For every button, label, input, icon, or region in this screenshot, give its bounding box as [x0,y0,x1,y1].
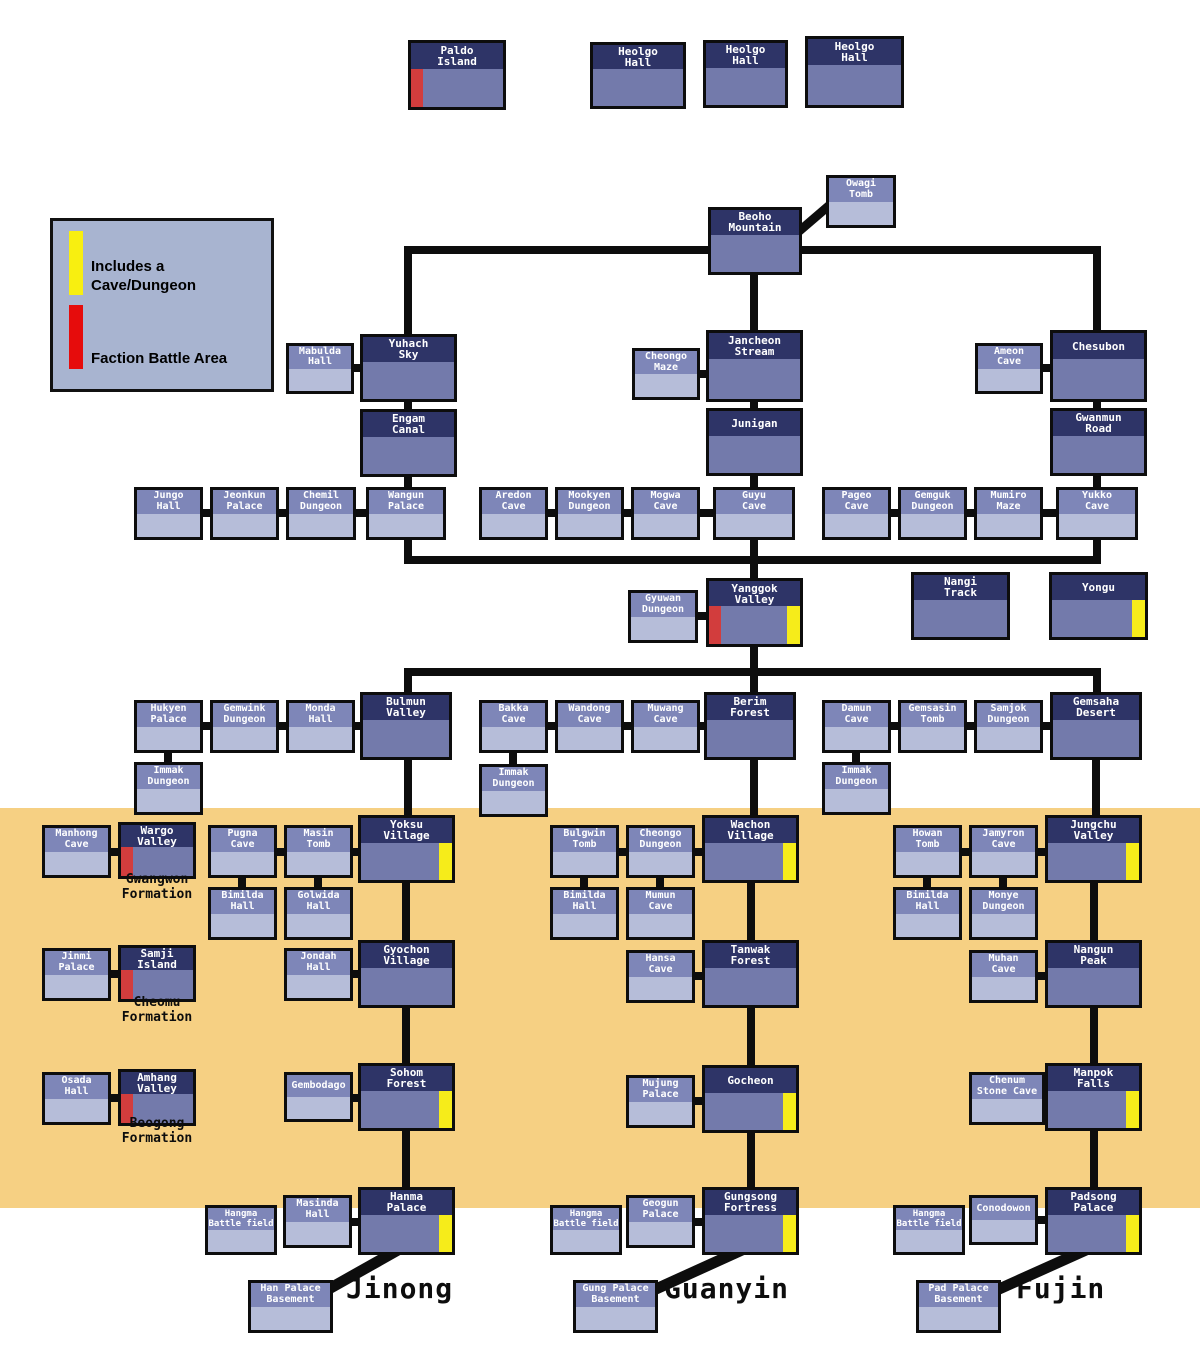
node-label: TanwakForest [705,943,796,968]
node-body [825,789,888,812]
cave-dungeon-marker [783,1093,796,1130]
node-jungchu-valley: JungchuValley [1045,815,1142,883]
node-label: HeolgoHall [593,45,683,69]
cave-dungeon-marker [1126,1215,1139,1252]
node-conodowon: Conodowon [969,1195,1038,1245]
connector-line [750,758,758,815]
node-label: MookyenDungeon [558,490,621,514]
node-body [705,1093,796,1130]
node-label: GuyuCave [716,490,792,514]
node-pugna-cave: PugnaCave [208,825,277,878]
node-label: ImmakDungeon [825,765,888,789]
node-body [896,852,959,875]
node-body [808,65,901,105]
node-body [482,727,545,750]
node-bimilda-hall-3: BimildaHall [893,887,962,940]
node-label: ImmakDungeon [482,767,545,791]
node-hangma-battlefield-1: HangmaBattle field [205,1205,277,1255]
node-label: BimildaHall [896,890,959,914]
cave-dungeon-marker [783,843,796,880]
node-body [361,1215,452,1252]
node-hanma-palace: HanmaPalace [358,1187,455,1255]
node-bimilda-hall-2: BimildaHall [550,887,619,940]
node-body [634,727,697,750]
node-label: YanggokValley [709,581,800,606]
node-jeonkun-palace: JeonkunPalace [210,487,279,540]
beogong-formation-label: Beogong Formation [87,1116,227,1146]
node-wangun-palace: WangunPalace [366,487,446,540]
node-label: SamjokDungeon [977,703,1040,727]
node-gwanmun-road: GwanmunRoad [1050,408,1147,476]
node-label: SamjiIsland [121,948,193,970]
node-label: OsadaHall [45,1075,108,1099]
node-engam-canal: EngamCanal [360,409,457,477]
node-body [289,514,353,537]
world-map-diagram: Includes a Cave/Dungeon Faction Battle A… [0,0,1200,1366]
node-masin-tomb: MasinTomb [284,825,353,878]
node-label: AmhangValley [121,1072,193,1094]
node-body [558,514,621,537]
node-geogun-palace: GeogunPalace [626,1195,695,1248]
node-hukyen-palace: HukyenPalace [134,700,203,753]
node-gungsong-fortress: GungsongFortress [702,1187,799,1255]
node-jamyron-cave: JamyronCave [969,825,1038,878]
node-heolgo-hall-3: HeolgoHall [805,36,904,108]
node-mujung-palace: MujungPalace [626,1075,695,1128]
node-body [558,727,621,750]
node-label: CheongoDungeon [629,828,692,852]
node-body [1059,514,1135,537]
node-body [629,1102,692,1125]
node-label: HukyenPalace [137,703,200,727]
node-gyochon-village: GyochonVillage [358,940,455,1008]
node-label: Gung PalaceBasement [576,1283,655,1307]
node-monda-hall: MondaHall [286,700,355,753]
node-gung-palace-basement: Gung PalaceBasement [573,1280,658,1333]
node-label: Yongu [1052,575,1145,600]
node-body [901,727,964,750]
node-label: Pad PalaceBasement [919,1283,998,1307]
node-label: AredonCave [482,490,545,514]
node-label: WangunPalace [369,490,443,514]
connector-line [402,881,410,940]
node-jancheon-stream: JancheonStream [706,330,803,402]
connector-line [747,1006,755,1065]
node-mookyen-dungeon: MookyenDungeon [555,487,624,540]
node-label: SohomForest [361,1066,452,1091]
node-masinda-hall: MasindaHall [283,1195,352,1248]
node-body [629,852,692,875]
node-label: JinmiPalace [45,951,108,975]
node-label: JeonkunPalace [213,490,276,514]
node-paldo-island: PaldoIsland [408,40,506,110]
node-label: WachonVillage [705,818,796,843]
node-body [482,791,545,814]
node-label: GemgukDungeon [901,490,964,514]
node-ameon-cave: AmeonCave [975,343,1043,394]
node-body [251,1307,330,1330]
node-body [1053,436,1144,473]
connector-line [1093,254,1101,330]
node-sohom-forest: SohomForest [358,1063,455,1131]
node-damun-cave: DamunCave [822,700,891,753]
node-gemwink-dungeon: GemwinkDungeon [210,700,279,753]
node-heolgo-hall-2: HeolgoHall [703,40,788,108]
node-label: ManpokFalls [1048,1066,1139,1091]
node-jondah-hall: JondahHall [284,948,353,1001]
node-label: GemwinkDungeon [213,703,276,727]
node-body [289,727,352,750]
node-nangi-track: NangiTrack [911,572,1010,640]
node-label: ManhongCave [45,828,108,852]
node-chesubon: Chesubon [1050,330,1147,402]
node-label: BulgwinTomb [553,828,616,852]
legend-battle-label: Faction Battle Area [91,349,227,368]
cave-dungeon-marker [1126,843,1139,880]
node-hangma-battlefield-2: HangmaBattle field [550,1205,622,1255]
node-body [977,727,1040,750]
node-immak-dungeon-1: ImmakDungeon [134,762,203,815]
node-body [705,843,796,880]
node-body [629,1222,692,1245]
node-gocheon: Gocheon [702,1065,799,1133]
node-body [553,914,616,937]
node-wachon-village: WachonVillage [702,815,799,883]
node-body [286,1222,349,1245]
node-body [707,720,793,757]
node-body [705,968,796,1005]
node-label: GyochonVillage [361,943,452,968]
connector-line [750,676,758,692]
node-tanwak-forest: TanwakForest [702,940,799,1008]
node-body [978,369,1040,391]
faction-battle-marker [411,69,423,107]
node-label: ChenumStone Cave [972,1075,1042,1099]
node-cheongo-dungeon: CheongoDungeon [626,825,695,878]
cave-dungeon-marker [439,843,452,880]
connector-line [1090,1129,1098,1187]
node-body [411,69,503,107]
node-label: JungchuValley [1048,818,1139,843]
node-label: GemsahaDesert [1053,695,1139,720]
faction-label-jinong: Jinong [346,1274,453,1304]
connector-line [404,758,412,815]
connector-line [1093,676,1101,692]
node-hangma-battlefield-3: HangmaBattle field [893,1205,965,1255]
node-guyu-cave: GuyuCave [713,487,795,540]
node-body [1048,1091,1139,1128]
node-body [709,359,800,399]
node-body [914,600,1007,637]
node-label: NangiTrack [914,575,1007,600]
node-body [825,514,888,537]
node-label: HeolgoHall [808,39,901,65]
node-label: BeohoMountain [711,210,799,235]
node-label: JondahHall [287,951,350,975]
node-body [137,727,200,750]
node-label: JungoHall [137,490,200,514]
node-body [137,789,200,812]
node-label: BimildaHall [553,890,616,914]
node-body [1053,720,1139,757]
node-body [829,202,893,225]
node-body [287,914,350,937]
node-body [896,1230,962,1252]
node-body [1053,359,1144,399]
node-label: MogwaCave [634,490,697,514]
node-label: GemsasinTomb [901,703,964,727]
node-berim-forest: BerimForest [704,692,796,760]
node-body [363,437,454,474]
node-label: JamyronCave [972,828,1035,852]
node-body [977,514,1040,537]
node-body [901,514,964,537]
node-label: YoksuVillage [361,818,452,843]
node-samjok-dungeon: SamjokDungeon [974,700,1043,753]
node-label: MujungPalace [629,1078,692,1102]
node-mumiro-maze: MumiroMaze [974,487,1043,540]
node-body [629,977,692,1000]
node-label: BakkaCave [482,703,545,727]
cave-dungeon-marker [1126,1091,1139,1128]
node-body [709,606,800,644]
node-yongu: Yongu [1049,572,1148,640]
node-body [634,514,697,537]
node-label: GeogunPalace [629,1198,692,1222]
node-label: CheongoMaze [635,351,697,374]
node-label: PaldoIsland [411,43,503,69]
legend-cave-swatch [69,231,83,295]
node-body [361,1091,452,1128]
node-gembodago: Gembodago [284,1072,353,1122]
node-label: MondaHall [289,703,352,727]
node-label: MabuldaHall [289,346,351,369]
node-body [972,1099,1042,1122]
node-label: PageoCave [825,490,888,514]
node-body [287,1097,350,1119]
node-body [211,914,274,937]
node-body [1048,968,1139,1005]
node-body [705,1215,796,1252]
node-body [287,852,350,875]
node-label: MuwangCave [634,703,697,727]
connector-line [1093,540,1101,560]
node-manpok-falls: ManpokFalls [1045,1063,1142,1131]
node-bulgwin-tomb: BulgwinTomb [550,825,619,878]
node-mumun-cave: MumunCave [626,887,695,940]
node-heolgo-hall-1: HeolgoHall [590,42,686,109]
node-body [553,1230,619,1252]
connector-line [750,275,758,330]
node-jungo-hall: JungoHall [134,487,203,540]
cave-dungeon-marker [1132,600,1145,637]
node-label: PadsongPalace [1048,1190,1139,1215]
node-label: BerimForest [707,695,793,720]
connector-line [750,540,758,578]
node-pad-palace-basement: Pad PalaceBasement [916,1280,1001,1333]
legend-battle-swatch [69,305,83,369]
node-nangun-peak: NangunPeak [1045,940,1142,1008]
node-label: MasinTomb [287,828,350,852]
legend-cave-label: Includes a Cave/Dungeon [91,257,196,295]
node-gemguk-dungeon: GemgukDungeon [898,487,967,540]
node-mabulda-hall: MabuldaHall [286,343,354,394]
node-body [137,514,200,537]
node-label: Gocheon [705,1068,796,1093]
node-gyuwan-dungeon: GyuwanDungeon [628,590,698,643]
node-label: GyuwanDungeon [631,593,695,617]
node-label: DamunCave [825,703,888,727]
node-label: MasindaHall [286,1198,349,1222]
node-body [287,975,350,998]
gwangwon-formation-label: Gwangwon Formation [87,872,227,902]
node-beoho-mountain: BeohoMountain [708,207,802,275]
connector-line [747,1131,755,1187]
node-label: MumiroMaze [977,490,1040,514]
node-body [369,514,443,537]
node-body [553,852,616,875]
node-body [1048,843,1139,880]
node-label: HowanTomb [896,828,959,852]
node-body [593,69,683,106]
node-body [361,843,452,880]
node-body [361,968,452,1005]
node-label: HansaCave [629,953,692,977]
connector-line [1092,758,1100,815]
faction-label-guanyin: Guanyin [664,1274,789,1304]
node-label: HangmaBattle field [896,1208,962,1230]
connector-line [404,668,1101,676]
node-chenum-stone-cave: ChenumStone Cave [969,1072,1045,1125]
node-muwang-cave: MuwangCave [631,700,700,753]
cave-dungeon-marker [439,1215,452,1252]
node-label: MumunCave [629,890,692,914]
node-golwida-hall: GolwidaHall [284,887,353,940]
node-body [825,727,888,750]
faction-battle-marker [709,606,721,644]
connector-line [747,881,755,940]
node-body [972,1220,1035,1242]
node-owagi-tomb: OwagiTomb [826,175,896,228]
connector-line [404,254,412,334]
node-body [709,436,800,473]
connector-line [404,676,412,692]
node-label: NangunPeak [1048,943,1139,968]
node-body [289,369,351,391]
node-label: Conodowon [972,1198,1035,1220]
node-body [631,617,695,640]
node-padsong-palace: PadsongPalace [1045,1187,1142,1255]
node-label: HeolgoHall [706,43,785,68]
node-body [716,514,792,537]
node-yanggok-valley: YanggokValley [706,578,803,647]
node-body [213,727,276,750]
node-label: HangmaBattle field [208,1208,274,1230]
node-immak-dungeon-3: ImmakDungeon [822,762,891,815]
node-samji-island: SamjiIsland [118,945,196,1002]
node-wargo-valley: WargoValley [118,822,196,879]
node-body [363,362,454,399]
node-body [363,720,449,757]
node-body [208,1230,274,1252]
node-body [919,1307,998,1330]
node-body [213,514,276,537]
node-label: BulmunValley [363,695,449,720]
node-label: GungsongFortress [705,1190,796,1215]
node-label: HanmaPalace [361,1190,452,1215]
node-label: YuhachSky [363,337,454,362]
node-body [576,1307,655,1330]
cave-dungeon-marker [783,1215,796,1252]
node-label: PugnaCave [211,828,274,852]
node-label: GolwidaHall [287,890,350,914]
node-pageo-cave: PageoCave [822,487,891,540]
node-label: ImmakDungeon [137,765,200,789]
node-aredon-cave: AredonCave [479,487,548,540]
node-wandong-cave: WandongCave [555,700,624,753]
node-monye-dungeon: MonyeDungeon [969,887,1038,940]
node-han-palace-basement: Han PalaceBasement [248,1280,333,1333]
node-yoksu-village: YoksuVillage [358,815,455,883]
node-label: MonyeDungeon [972,890,1035,914]
node-label: YukkoCave [1059,490,1135,514]
cave-dungeon-marker [787,606,800,644]
node-label: OwagiTomb [829,178,893,202]
cave-dungeon-marker [439,1091,452,1128]
node-chemil-dungeon: ChemilDungeon [286,487,356,540]
node-body [711,235,799,272]
node-body [896,914,959,937]
node-bakka-cave: BakkaCave [479,700,548,753]
faction-label-fujin: Fujin [1016,1274,1105,1304]
node-label: GwanmunRoad [1053,411,1144,436]
node-body [635,374,697,397]
connector-line [402,1129,410,1187]
node-body [972,852,1035,875]
node-label: WargoValley [121,825,193,847]
connector-line [404,477,412,487]
node-gemsaha-desert: GemsahaDesert [1050,692,1142,760]
node-junigan: Junigan [706,408,803,476]
node-immak-dungeon-2: ImmakDungeon [479,764,548,817]
node-label: WandongCave [558,703,621,727]
connector-line [1090,1006,1098,1063]
node-bulmun-valley: BulmunValley [360,692,452,760]
node-label: Han PalaceBasement [251,1283,330,1307]
node-manhong-cave: ManhongCave [42,825,111,878]
node-label: MuhanCave [972,953,1035,977]
node-label: HangmaBattle field [553,1208,619,1230]
legend: Includes a Cave/Dungeon Faction Battle A… [50,218,274,392]
node-body [972,977,1035,1000]
node-mogwa-cave: MogwaCave [631,487,700,540]
node-body [706,68,785,105]
node-gemsasin-tomb: GemsasinTomb [898,700,967,753]
node-body [629,914,692,937]
node-label: AmeonCave [978,346,1040,369]
node-howan-tomb: HowanTomb [893,825,962,878]
node-muhan-cave: MuhanCave [969,950,1038,1003]
node-label: Gembodago [287,1075,350,1097]
node-label: ChemilDungeon [289,490,353,514]
node-yuhach-sky: YuhachSky [360,334,457,402]
node-hansa-cave: HansaCave [626,950,695,1003]
node-cheongo-maze: CheongoMaze [632,348,700,400]
connector-line [402,1006,410,1063]
node-label: EngamCanal [363,412,454,437]
cheomu-formation-label: Cheomu Formation [87,995,227,1025]
node-body [1048,1215,1139,1252]
